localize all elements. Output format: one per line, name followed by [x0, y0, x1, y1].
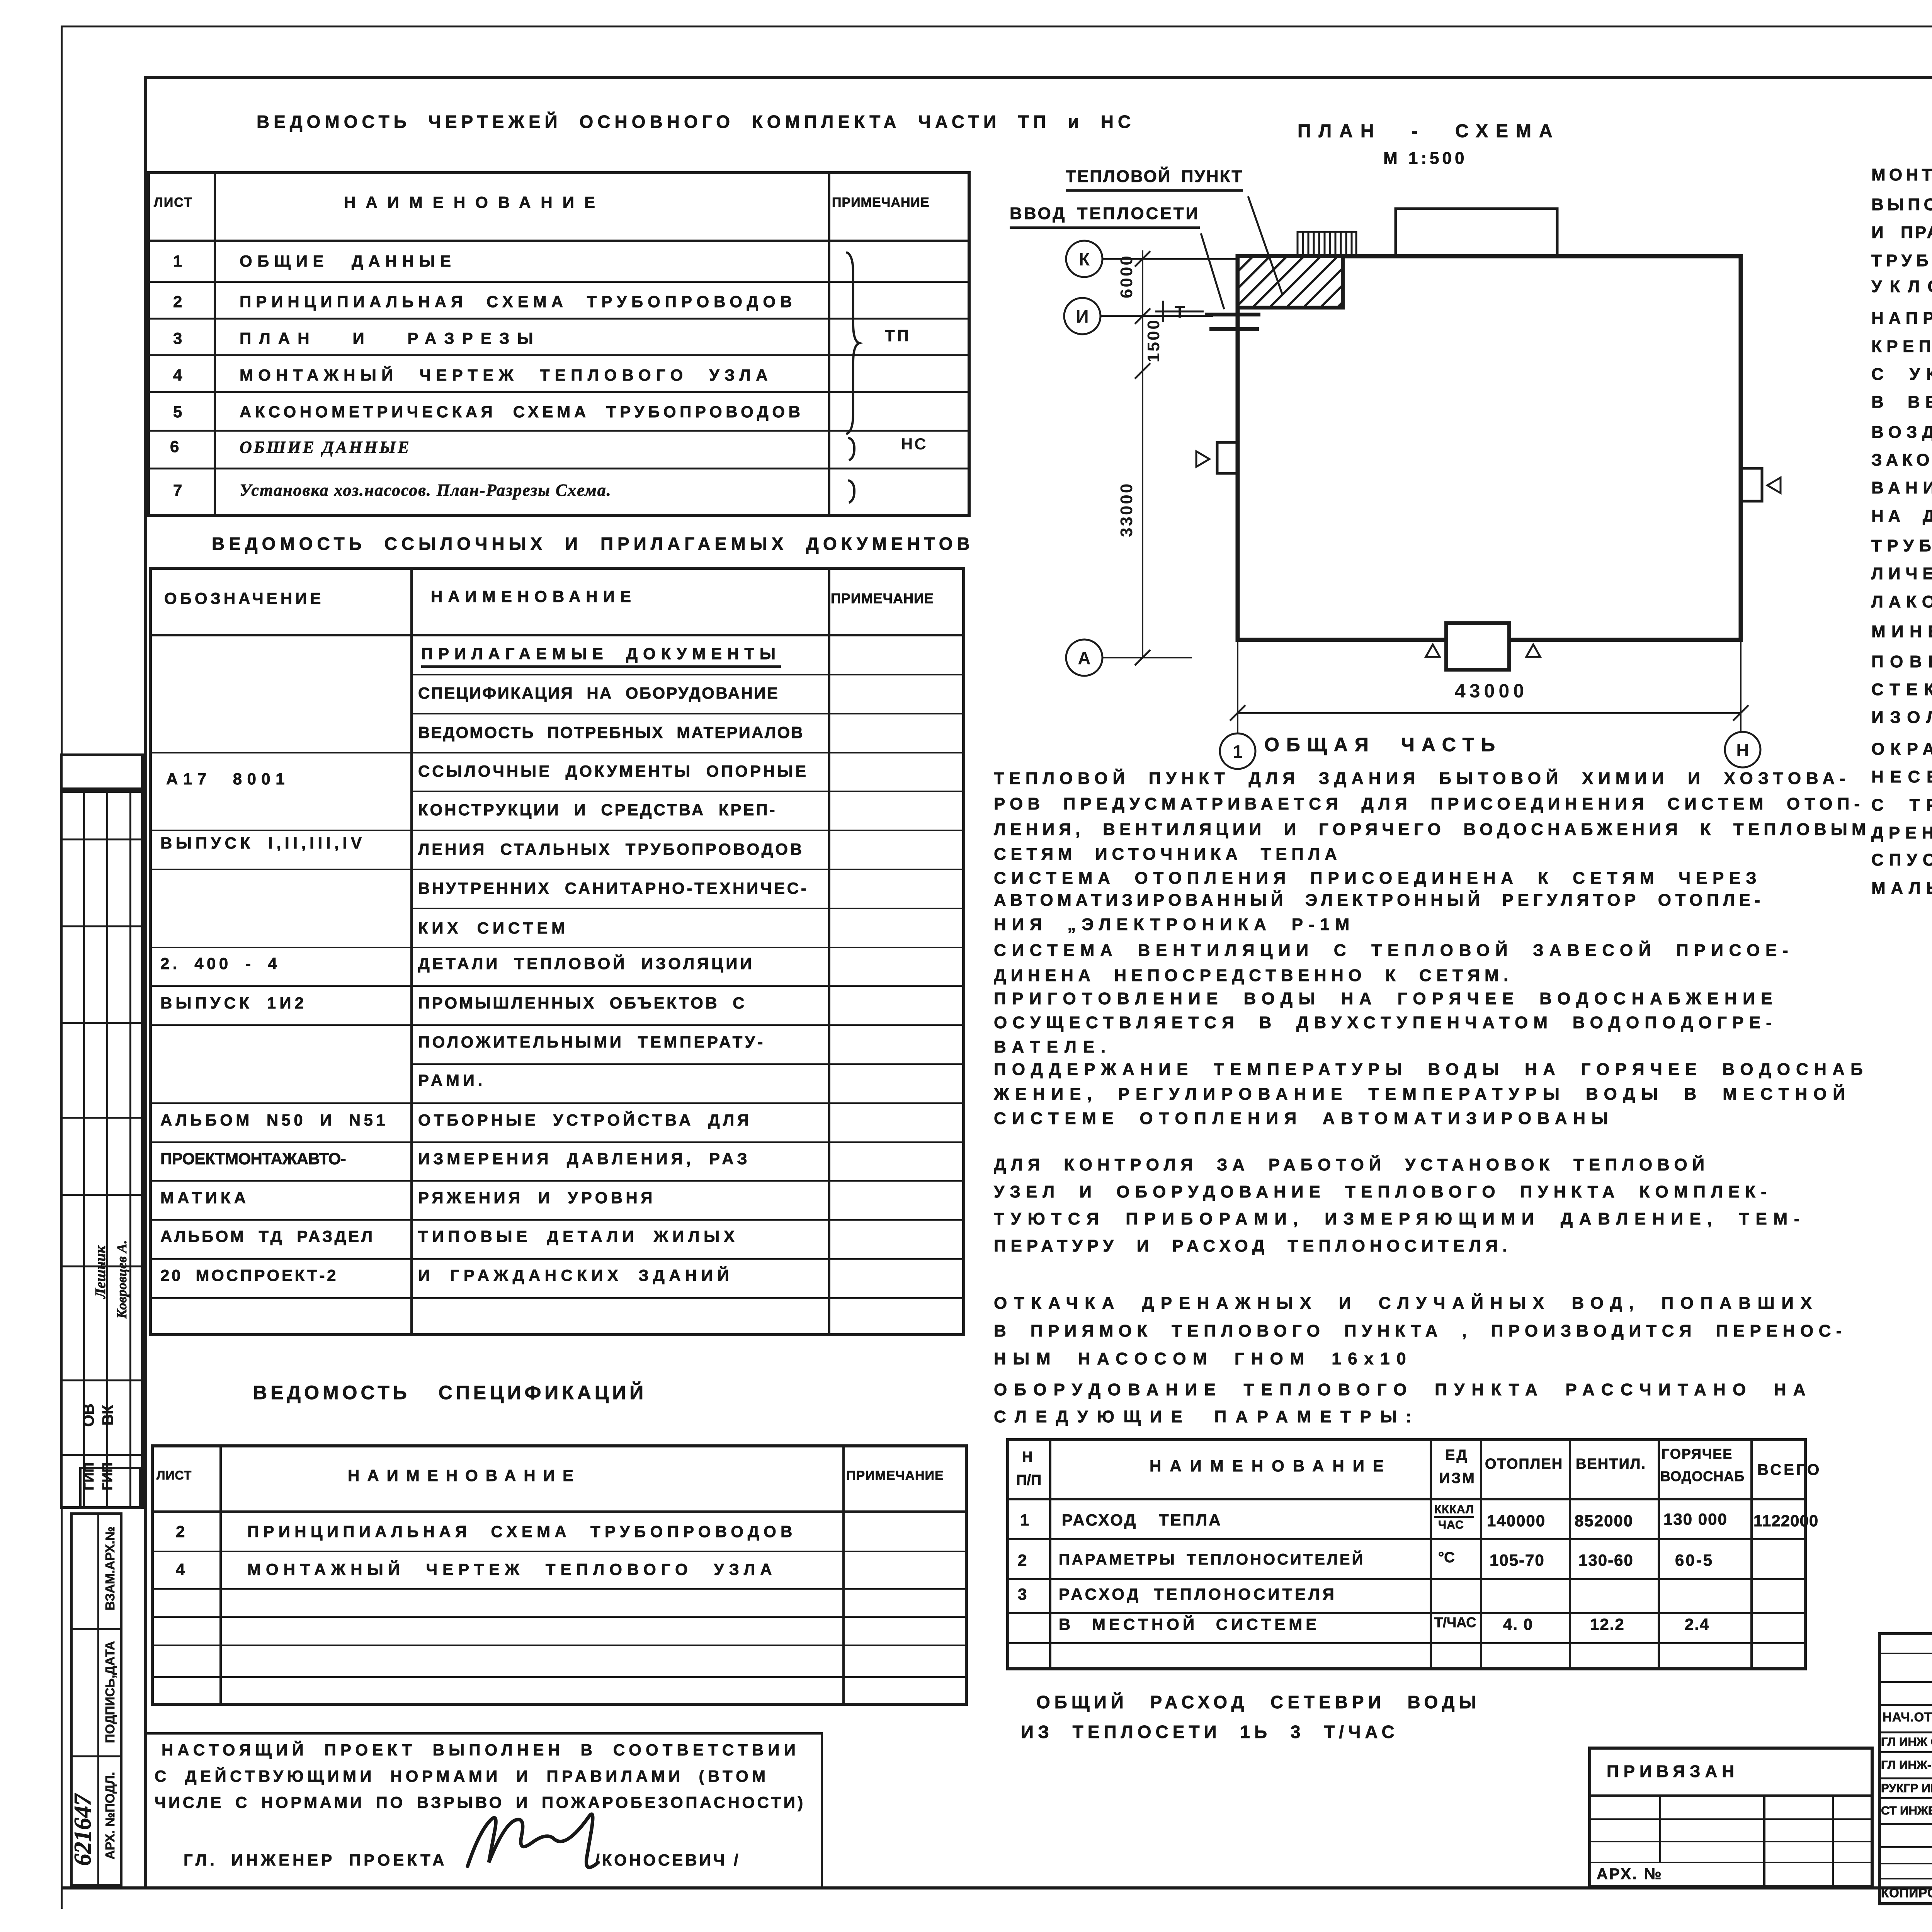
svg-text:Н: Н: [1736, 740, 1749, 760]
svg-text:6000: 6000: [1117, 254, 1136, 298]
svg-text:Т: Т: [1175, 303, 1185, 321]
svg-text:А: А: [1078, 648, 1090, 668]
svg-text:НС: НС: [901, 435, 928, 453]
svg-text:1500: 1500: [1144, 318, 1163, 362]
svg-text:К: К: [1079, 249, 1090, 269]
svg-text:33000: 33000: [1117, 482, 1136, 537]
svg-text:И: И: [1076, 306, 1088, 327]
svg-text:1: 1: [1233, 742, 1243, 762]
svg-text:43000: 43000: [1455, 680, 1528, 702]
